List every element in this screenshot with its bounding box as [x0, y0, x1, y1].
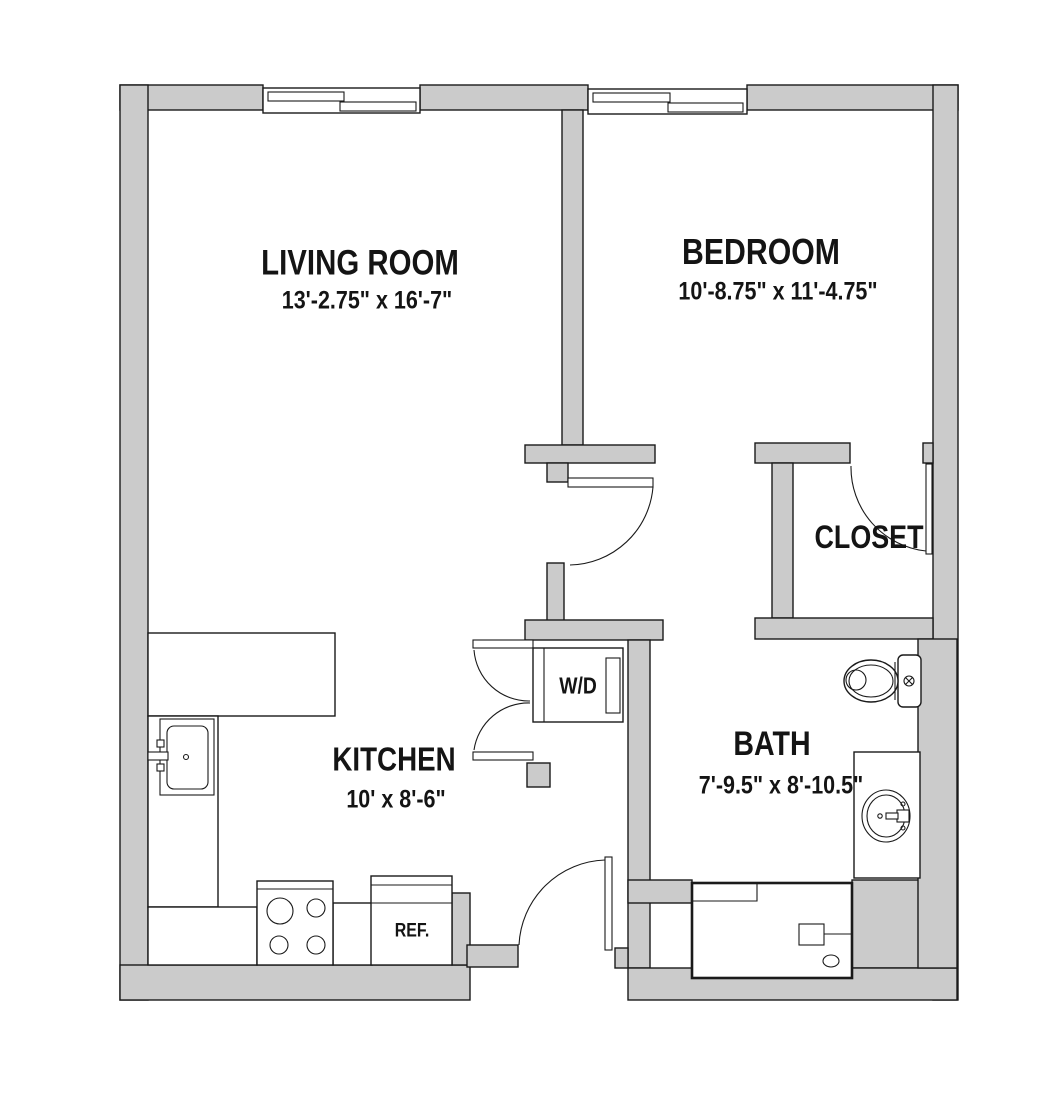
- bath-label: BATH: [733, 727, 810, 761]
- door-panel: [568, 478, 653, 487]
- hall-door-jamb: [547, 463, 568, 482]
- living-bedroom-partition: [562, 110, 583, 445]
- counter-lower: [148, 907, 257, 965]
- living-room-label: LIVING ROOM: [261, 246, 459, 281]
- sink-bowl: [167, 726, 208, 789]
- door-panel: [473, 640, 533, 648]
- wd-closet-doors: [473, 640, 533, 760]
- door-panel: [605, 857, 612, 950]
- hall-door: [568, 478, 653, 565]
- bedroom-label: BEDROOM: [682, 234, 840, 270]
- left-wall: [120, 85, 148, 1000]
- refrigerator-label: REF.: [395, 922, 430, 941]
- tub-outline: [692, 883, 852, 978]
- bath-dimensions: 7'-9.5" x 8'-10.5": [699, 774, 863, 799]
- door-swing-arc: [474, 703, 530, 750]
- window-sash: [668, 103, 743, 112]
- bathtub: [692, 883, 852, 978]
- closet-label: CLOSET: [814, 521, 923, 553]
- window-sash: [593, 93, 670, 102]
- bath-east-plumbing-wall: [918, 639, 957, 968]
- wd-lid: [606, 658, 620, 713]
- living-room-dimensions: 13'-2.75" x 16'-7": [282, 289, 452, 314]
- window-sash: [340, 102, 416, 111]
- closet-door-tab: [923, 443, 933, 463]
- counter-upper: [148, 633, 335, 716]
- kitchen-label: KITCHEN: [332, 743, 455, 776]
- tub-faucet: [799, 924, 824, 945]
- entry-door: [519, 857, 612, 950]
- faucet: [148, 752, 168, 760]
- faucet-handle: [157, 764, 164, 771]
- entry-left-tab: [467, 945, 518, 967]
- door-panel: [473, 752, 533, 760]
- bedroom-dimensions: 10'-8.75" x 11'-4.75": [678, 280, 877, 305]
- faucet: [897, 810, 909, 822]
- counter-mid: [333, 903, 372, 965]
- washer-dryer-label: W/D: [559, 675, 597, 698]
- faucet-spout: [886, 813, 898, 819]
- closet-bath-wall: [755, 618, 933, 639]
- hall-door-header: [525, 445, 655, 463]
- wd-south-jamb: [527, 763, 550, 787]
- top-wall-middle: [420, 85, 588, 110]
- wd-closet-east-wall: [628, 640, 650, 968]
- door-swing-arc: [519, 860, 605, 945]
- faucet-handle: [157, 740, 164, 747]
- toilet-bowl: [844, 660, 898, 702]
- entry-right-tab: [615, 948, 628, 968]
- bath-southwest-return: [628, 880, 692, 903]
- stove: [257, 881, 333, 965]
- tub-surround-block: [852, 880, 922, 968]
- closet-header: [755, 443, 850, 463]
- door-swing-arc: [474, 650, 530, 701]
- kitchen-dimensions: 10' x 8'-6": [346, 788, 445, 813]
- bottom-wall-left: [120, 965, 470, 1000]
- living-room-window: [263, 88, 420, 113]
- door-panel: [926, 464, 932, 554]
- bathroom-vanity: [854, 752, 920, 878]
- toilet: [844, 655, 921, 707]
- door-swing-arc: [570, 487, 653, 565]
- hall-door-stem: [547, 563, 564, 622]
- closet-west-wall: [772, 463, 793, 618]
- window-sash: [268, 92, 344, 101]
- top-wall-right: [747, 85, 958, 110]
- floor-plan: LIVING ROOM 13'-2.75" x 16'-7" BEDROOM 1…: [0, 0, 1064, 1097]
- wd-closet-north-wall: [525, 620, 663, 640]
- bedroom-window: [588, 89, 747, 114]
